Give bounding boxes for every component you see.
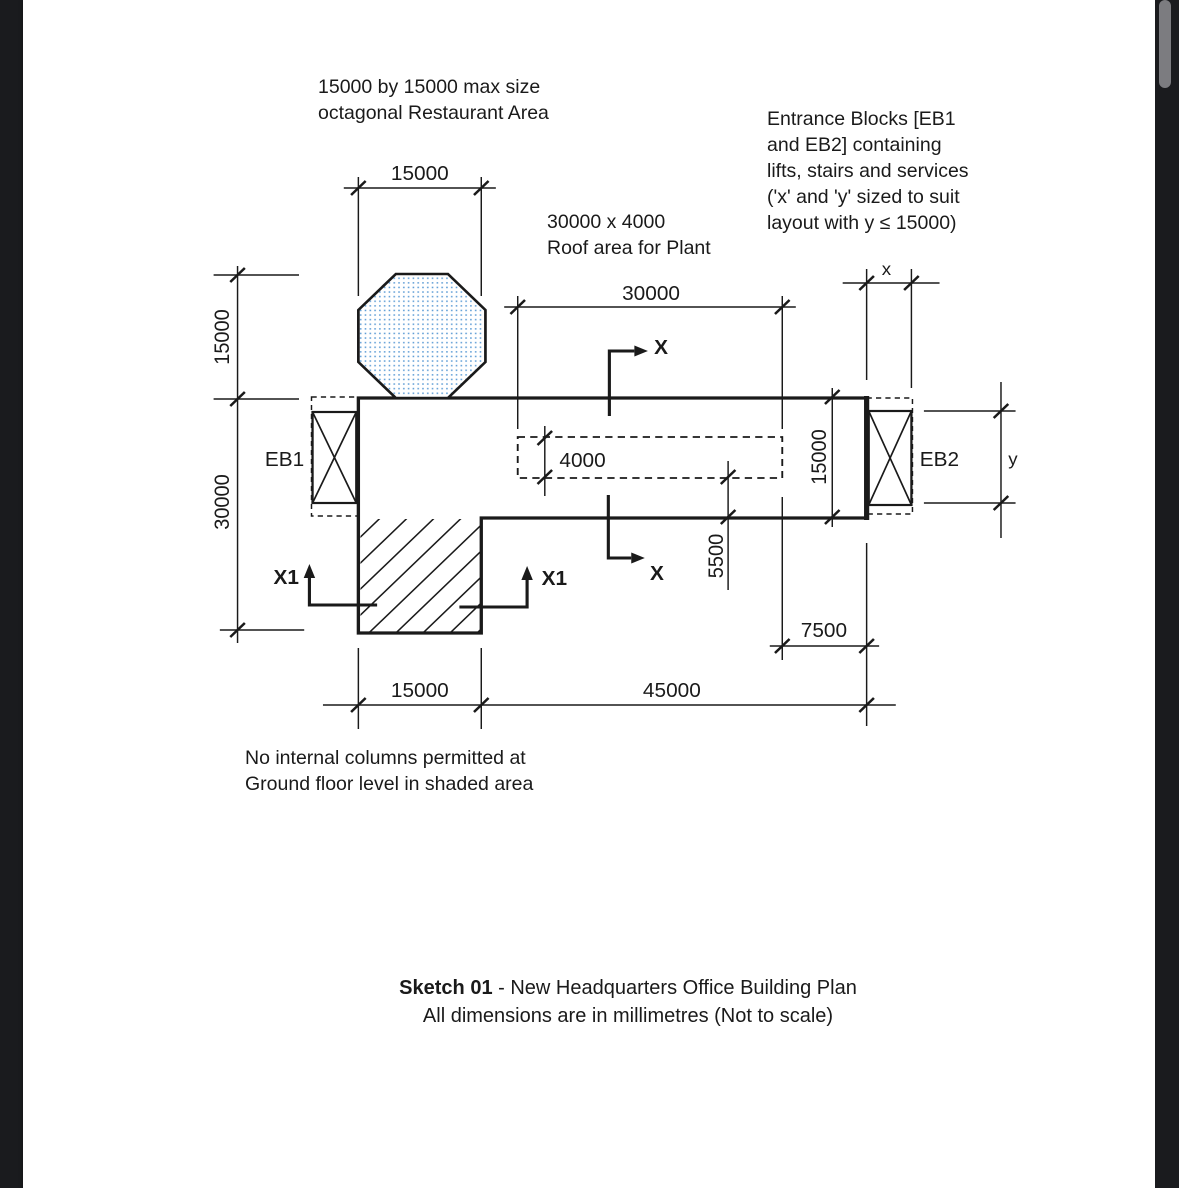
dim-label-eb-height: y xyxy=(1008,448,1018,469)
caption-title-bold: Sketch 01 xyxy=(399,977,492,999)
section-label-x-top: X xyxy=(654,337,668,359)
note-no-columns-line2: Ground floor level in shaded area xyxy=(245,771,533,797)
note-restaurant-line1: 15000 by 15000 max size xyxy=(318,74,549,100)
note-restaurant-line2: octagonal Restaurant Area xyxy=(318,100,549,126)
scrollbar-thumb[interactable] xyxy=(1159,0,1171,88)
note-entrance-line5: layout with y ≤ 15000) xyxy=(767,210,969,236)
document-page: 15000 15000 30000 30000 xyxy=(23,0,1155,1188)
note-no-columns: No internal columns permitted at Ground … xyxy=(245,745,533,797)
caption-title: Sketch 01 - New Headquarters Office Buil… xyxy=(278,974,978,1002)
dim-label-bottom-main: 45000 xyxy=(643,680,701,702)
dim-label-roof-depth: 4000 xyxy=(559,450,605,472)
dim-label-roof-width: 30000 xyxy=(622,283,680,305)
note-entrance-line2: and EB2] containing xyxy=(767,132,969,158)
dim-label-right-height: 15000 xyxy=(809,429,831,485)
note-entrance-blocks: Entrance Blocks [EB1 and EB2] containing… xyxy=(767,106,969,236)
dim-label-octagon-width: 15000 xyxy=(391,163,449,185)
dim-label-plant-offset: 5500 xyxy=(706,534,728,578)
sketch-caption: Sketch 01 - New Headquarters Office Buil… xyxy=(278,974,978,1030)
note-restaurant: 15000 by 15000 max size octagonal Restau… xyxy=(318,74,549,126)
dimension-roof-edge-offset: 7500 xyxy=(770,497,879,726)
section-label-x1-left: X1 xyxy=(274,567,299,589)
dim-label-left-upper: 15000 xyxy=(212,309,234,365)
section-label-x1-right: X1 xyxy=(542,568,567,590)
note-roof-line1: 30000 x 4000 xyxy=(547,209,711,235)
note-roof-plant: 30000 x 4000 Roof area for Plant xyxy=(547,209,711,261)
note-no-columns-line1: No internal columns permitted at xyxy=(245,745,533,771)
restaurant-octagon xyxy=(358,274,485,398)
eb1-label: EB1 xyxy=(265,449,304,471)
eb2-label: EB2 xyxy=(920,449,959,471)
caption-subtitle: All dimensions are in millimetres (Not t… xyxy=(278,1002,978,1030)
entrance-block-eb1 xyxy=(312,397,359,516)
dim-label-bottom-wing: 15000 xyxy=(391,680,449,702)
note-entrance-line1: Entrance Blocks [EB1 xyxy=(767,106,969,132)
note-entrance-line3: lifts, stairs and services xyxy=(767,158,969,184)
note-roof-line2: Roof area for Plant xyxy=(547,235,711,261)
dimension-bottom-widths: 15000 45000 xyxy=(323,648,896,729)
entrance-block-eb2 xyxy=(867,398,913,514)
dim-label-left-lower: 30000 xyxy=(212,474,234,530)
caption-title-rest: - New Headquarters Office Building Plan xyxy=(493,977,857,999)
dim-label-roof-edge-offset: 7500 xyxy=(801,620,847,642)
section-label-x-bottom: X xyxy=(650,563,664,585)
scrollbar-track[interactable] xyxy=(1155,0,1179,1188)
note-entrance-line4: ('x' and 'y' sized to suit xyxy=(767,184,969,210)
dim-label-eb-width: x xyxy=(882,258,891,279)
building-footprint xyxy=(358,398,866,633)
dimension-eb-width-x: x xyxy=(843,258,940,388)
